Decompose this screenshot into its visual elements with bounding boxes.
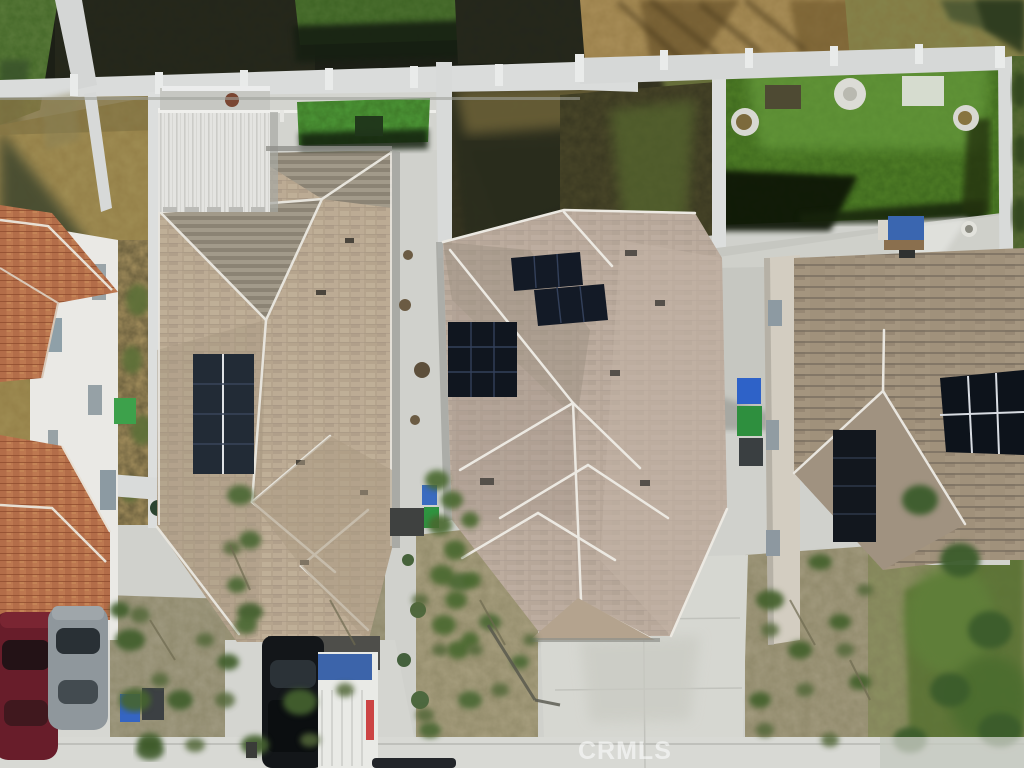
svg-text:CRMLS: CRMLS xyxy=(578,737,672,765)
